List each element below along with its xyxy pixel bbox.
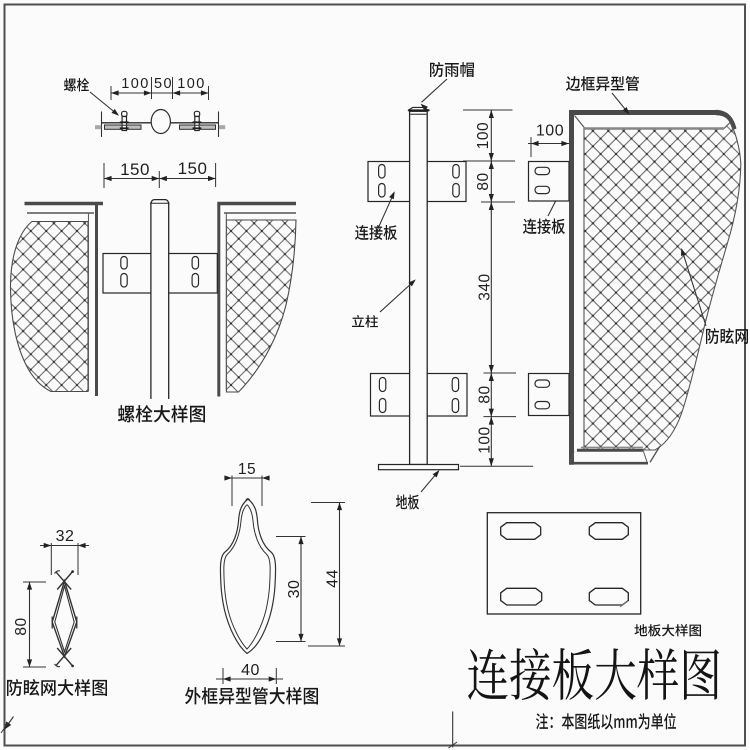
svg-text:150: 150 xyxy=(120,160,150,179)
svg-text:150: 150 xyxy=(178,159,208,178)
svg-text:100: 100 xyxy=(476,426,493,453)
svg-text:32: 32 xyxy=(56,528,75,545)
svg-text:100: 100 xyxy=(177,76,205,92)
svg-text:340: 340 xyxy=(476,273,493,300)
svg-text:40: 40 xyxy=(241,662,260,679)
svg-text:80: 80 xyxy=(475,172,492,190)
svg-text:15: 15 xyxy=(238,461,256,478)
svg-text:44: 44 xyxy=(324,569,341,588)
svg-text:100: 100 xyxy=(475,122,492,149)
svg-text:100: 100 xyxy=(121,76,149,92)
svg-text:80: 80 xyxy=(13,617,30,635)
svg-text:100: 100 xyxy=(536,123,564,140)
svg-text:80: 80 xyxy=(476,385,493,403)
svg-text:30: 30 xyxy=(286,580,303,599)
svg-text:50: 50 xyxy=(154,76,173,92)
